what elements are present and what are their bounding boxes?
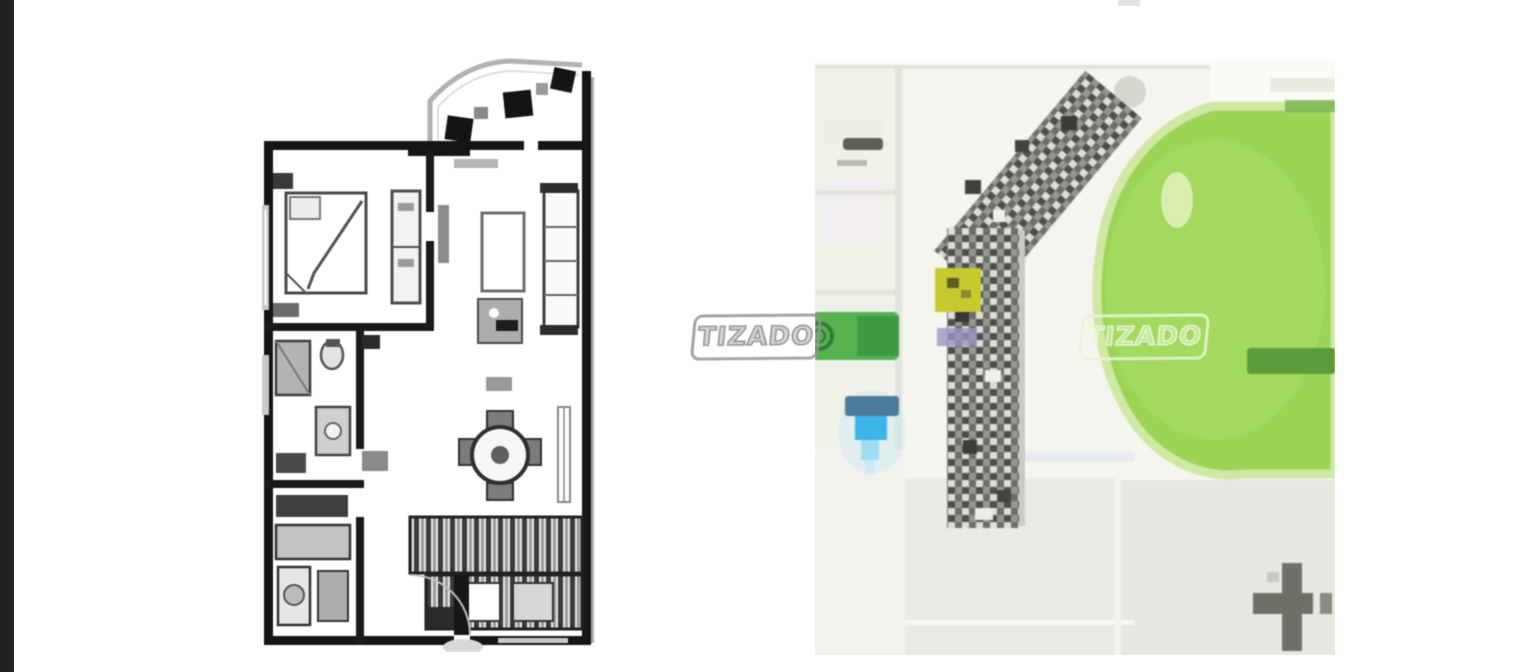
wardrobe [392,191,420,303]
washer [318,571,348,621]
radiator [273,303,299,317]
sofa [540,183,578,335]
park-clearing [1161,172,1193,228]
window-edge-bar [0,0,14,672]
accent-block [937,328,977,346]
top-right-road [1270,78,1335,92]
balcony-planter [550,67,576,93]
map-image[interactable] [815,60,1335,655]
tv-unit [438,205,449,263]
sideboard [486,377,512,391]
floor-plan-image[interactable] [258,55,596,652]
nightstand [273,173,293,189]
cabinet [478,299,522,343]
plan-shadow-line [591,77,594,643]
map-edge-artifact [1118,0,1140,6]
hall-mark [362,335,380,349]
map-pin-icon [838,390,906,474]
hall-mark [362,451,388,471]
rug [454,159,498,168]
sink [325,423,341,439]
parking-area [815,452,1335,655]
content-area: TIZADO TIZADO [0,0,1518,672]
balcony-planter [503,90,534,119]
park-dark-strip [1247,348,1335,374]
park-label [815,312,899,360]
kitchen-counter [410,517,582,629]
watermark-text: TIZADO [1085,323,1204,350]
tizado-watermark-right: TIZADO [1078,313,1211,360]
balcony-planter [444,115,473,142]
watermark-text: TIZADO [697,323,816,350]
tizado-watermark-left: TIZADO [690,313,823,360]
highlighted-unit [935,268,981,312]
bed [286,193,366,293]
